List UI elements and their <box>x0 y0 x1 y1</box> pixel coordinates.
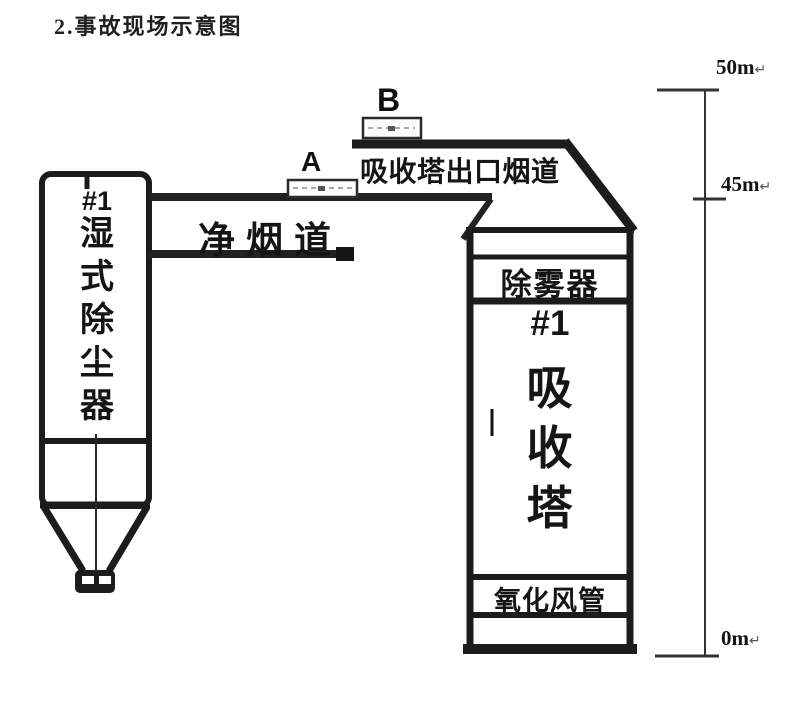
return-mark-icon: ↵ <box>749 632 761 648</box>
outlet-flue-duct-label: 吸收塔出口烟道 <box>360 150 560 190</box>
elevation-label-45m: 45m↵ <box>721 172 771 197</box>
marker-b-letter: B <box>377 82 400 119</box>
elevation-45m-value: 45m <box>721 172 760 196</box>
marker-a-letter: A <box>301 146 321 178</box>
clean-flue-duct-label: 净烟道 <box>198 210 342 264</box>
elevation-label-0m: 0m↵ <box>721 626 761 651</box>
marker-b-box <box>363 118 421 138</box>
tower-unit-number: #1 <box>470 304 630 344</box>
elevation-scale <box>655 90 726 657</box>
wet-esp-label: 湿 式 除 尘 器 <box>42 213 152 428</box>
demister-label: 除雾器 <box>470 259 630 304</box>
return-mark-icon: ↵ <box>755 61 767 77</box>
accident-scene-diagram-page: 2.事故现场示意图 #1 湿 式 除 尘 器 净烟道 吸收塔出口烟道 A B 除… <box>0 0 806 701</box>
elevation-0m-value: 0m <box>721 626 749 650</box>
oxidation-air-duct-label: 氧化风管 <box>470 579 630 618</box>
page-title: 2.事故现场示意图 <box>54 9 243 41</box>
elevation-label-50m: 50m↵ <box>716 55 766 80</box>
marker-a-box <box>288 180 357 197</box>
elevation-50m-value: 50m <box>716 55 755 79</box>
return-mark-icon: ↵ <box>760 178 772 194</box>
absorber-tower-label: 吸 收 塔 <box>470 358 630 538</box>
